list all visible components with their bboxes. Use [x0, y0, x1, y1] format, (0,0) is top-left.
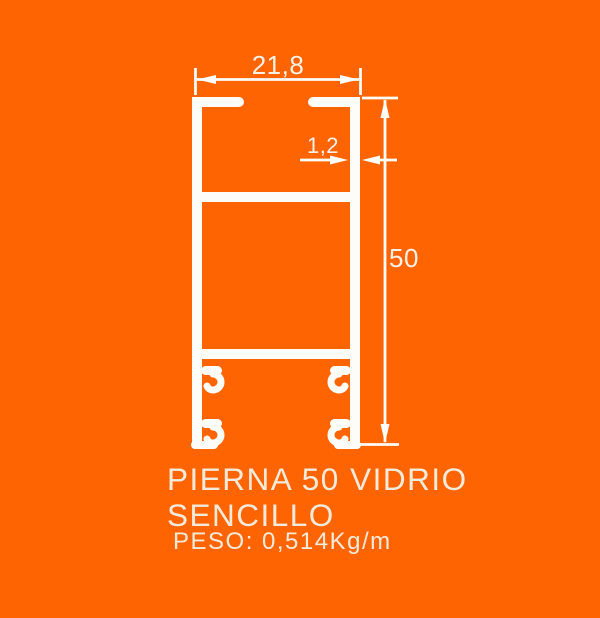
profile-diagram-canvas: 21,8 1,2 50 [0, 0, 600, 618]
dimension-height-value: 50 [389, 243, 419, 273]
profile-top-right-lip [308, 97, 360, 107]
profile-left-wall [192, 97, 202, 448]
profile-right-wall [350, 97, 360, 448]
profile-right-foot [334, 441, 361, 449]
profile-left-foot [191, 441, 218, 449]
dimension-top-width-value: 21,8 [252, 50, 305, 80]
profile-upper-crossbar [197, 192, 355, 202]
technical-drawing-sheet: 21,8 1,2 50 [0, 0, 600, 618]
dimension-wall-thickness-value: 1,2 [307, 133, 339, 158]
profile-title-line1: PIERNA 50 VIDRIO [167, 461, 468, 497]
profile-lower-crossbar [197, 349, 355, 359]
profile-weight-spec: PESO: 0,514Kg/m [173, 528, 392, 555]
profile-top-left-lip [192, 97, 244, 107]
